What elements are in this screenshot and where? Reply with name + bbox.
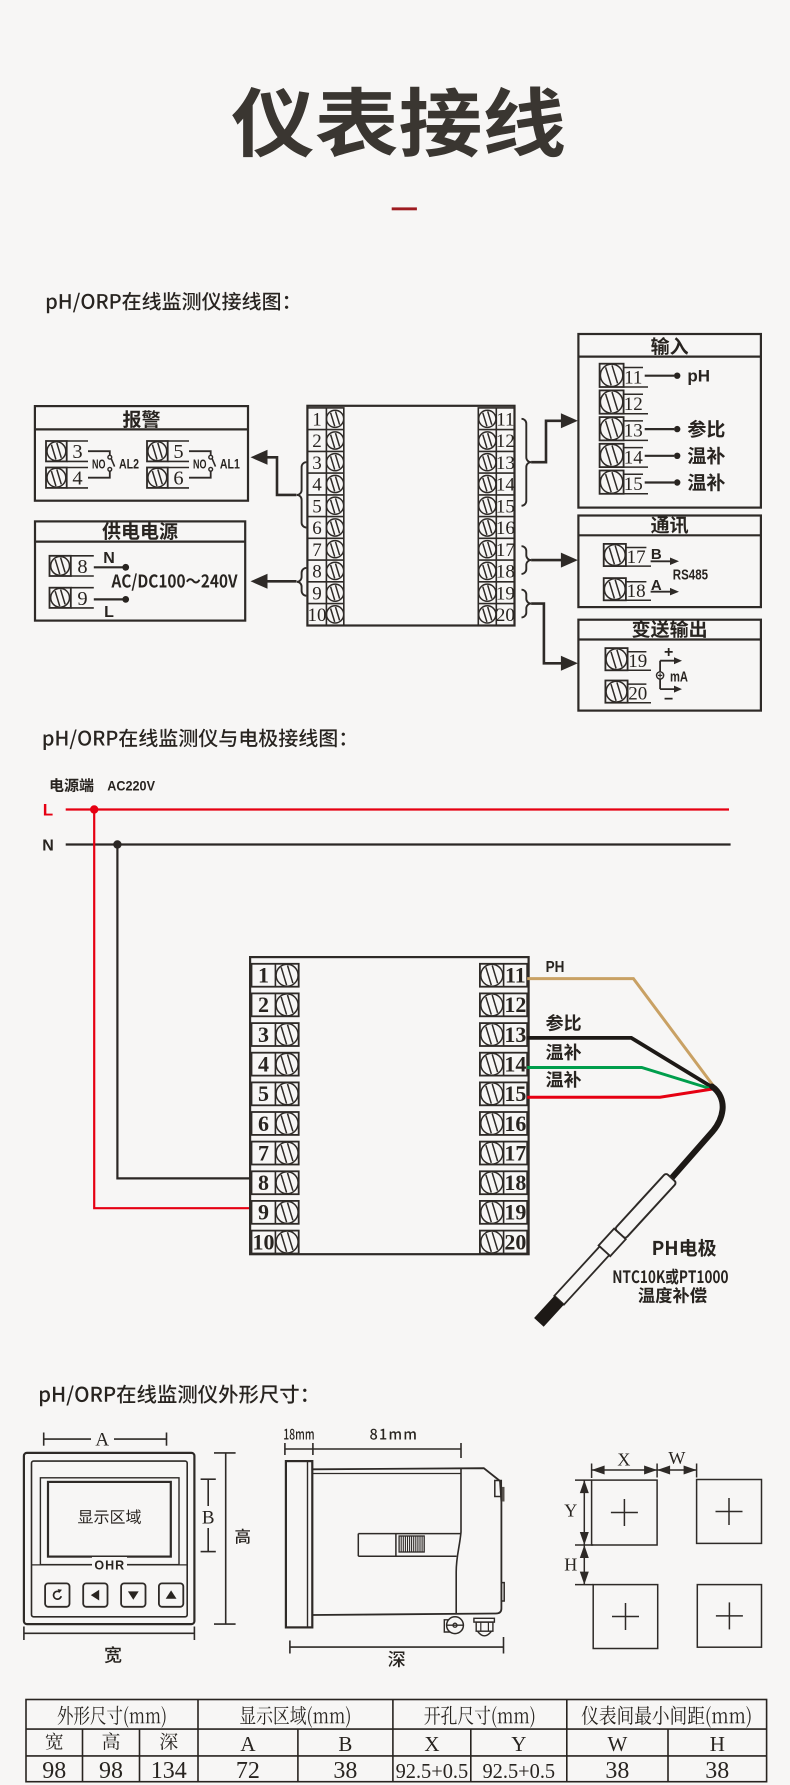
svg-text:10: 10 (253, 1229, 275, 1254)
svg-text:3: 3 (258, 1022, 269, 1047)
svg-text:4: 4 (312, 475, 322, 496)
svg-text:A: A (95, 1430, 109, 1451)
svg-text:2: 2 (258, 992, 269, 1017)
svg-text:H: H (564, 1555, 577, 1575)
svg-text:3: 3 (72, 441, 82, 463)
svg-text:8: 8 (312, 562, 322, 583)
svg-text:AC220V: AC220V (107, 779, 155, 794)
svg-text:N: N (103, 550, 115, 567)
svg-text:NO: NO (92, 457, 106, 472)
svg-text:20: 20 (496, 605, 515, 626)
svg-text:mA: mA (670, 669, 688, 686)
svg-text:8: 8 (77, 556, 87, 578)
svg-text:14: 14 (496, 475, 516, 496)
svg-text:W: W (607, 1732, 627, 1756)
svg-text:X: X (424, 1732, 439, 1756)
svg-text:9: 9 (77, 588, 87, 610)
svg-text:H: H (710, 1732, 725, 1756)
svg-text:W: W (668, 1448, 685, 1468)
svg-text:Y: Y (511, 1732, 526, 1756)
svg-text:15: 15 (624, 474, 643, 495)
svg-text:14: 14 (624, 447, 644, 468)
svg-text:AL2: AL2 (119, 457, 139, 472)
svg-text:6: 6 (173, 468, 183, 490)
svg-text:5: 5 (173, 441, 183, 463)
svg-text:6: 6 (258, 1111, 269, 1136)
svg-text:AL1: AL1 (220, 457, 240, 472)
svg-text:12: 12 (496, 431, 515, 452)
svg-text:7: 7 (312, 540, 322, 561)
svg-text:+: + (664, 644, 673, 661)
svg-text:17: 17 (504, 1140, 526, 1165)
svg-text:12: 12 (504, 992, 526, 1017)
svg-text:19: 19 (628, 651, 647, 672)
svg-text:18: 18 (496, 562, 515, 583)
svg-text:1: 1 (258, 963, 269, 988)
svg-text:−: − (664, 691, 673, 708)
svg-text:13: 13 (496, 453, 515, 474)
svg-text:11: 11 (505, 963, 526, 988)
svg-text:11: 11 (624, 367, 642, 388)
svg-text:92.5+0.5: 92.5+0.5 (396, 1759, 469, 1783)
svg-text:RS485: RS485 (673, 568, 708, 584)
svg-text:PH: PH (546, 959, 565, 976)
svg-text:18: 18 (504, 1170, 526, 1195)
svg-text:19: 19 (504, 1200, 526, 1225)
svg-text:16: 16 (496, 518, 515, 539)
svg-text:15: 15 (496, 496, 515, 517)
svg-text:X: X (617, 1450, 630, 1470)
svg-text:L: L (43, 801, 53, 820)
svg-text:B: B (202, 1508, 215, 1529)
svg-text:98: 98 (42, 1758, 66, 1784)
svg-text:8: 8 (258, 1170, 269, 1195)
svg-text:NO: NO (193, 457, 207, 472)
svg-text:17: 17 (496, 540, 515, 561)
svg-text:7: 7 (258, 1140, 269, 1165)
svg-text:12: 12 (624, 394, 643, 415)
svg-text:B: B (338, 1732, 352, 1756)
svg-text:92.5+0.5: 92.5+0.5 (483, 1759, 556, 1783)
svg-text:20: 20 (628, 683, 647, 704)
svg-text:11: 11 (496, 409, 514, 430)
svg-text:4: 4 (72, 468, 82, 490)
svg-text:18: 18 (627, 581, 646, 602)
svg-text:38: 38 (605, 1758, 629, 1784)
svg-text:9: 9 (312, 583, 322, 604)
svg-text:N: N (42, 838, 54, 855)
svg-text:L: L (104, 604, 114, 621)
svg-text:134: 134 (151, 1758, 187, 1784)
svg-text:5: 5 (258, 1081, 269, 1106)
svg-text:72: 72 (236, 1758, 260, 1784)
svg-text:Y: Y (564, 1501, 577, 1521)
svg-text:20: 20 (504, 1229, 526, 1254)
svg-text:13: 13 (624, 421, 643, 442)
svg-text:19: 19 (496, 583, 515, 604)
svg-text:9: 9 (258, 1200, 269, 1225)
svg-text:2: 2 (312, 431, 322, 452)
svg-text:6: 6 (312, 518, 322, 539)
svg-text:A: A (240, 1732, 256, 1756)
svg-text:pH: pH (687, 367, 710, 386)
svg-text:17: 17 (627, 547, 646, 568)
svg-text:13: 13 (504, 1022, 526, 1047)
svg-text:1: 1 (312, 409, 322, 430)
svg-text:4: 4 (258, 1052, 269, 1077)
svg-text:5: 5 (312, 496, 322, 517)
svg-text:14: 14 (504, 1052, 526, 1077)
svg-text:10: 10 (308, 605, 327, 626)
svg-text:38: 38 (705, 1758, 729, 1784)
svg-text:3: 3 (312, 453, 322, 474)
svg-text:38: 38 (333, 1758, 357, 1784)
svg-text:16: 16 (504, 1111, 526, 1136)
svg-text:OHR: OHR (94, 1558, 125, 1572)
svg-text:98: 98 (99, 1758, 123, 1784)
svg-text:15: 15 (504, 1081, 526, 1106)
